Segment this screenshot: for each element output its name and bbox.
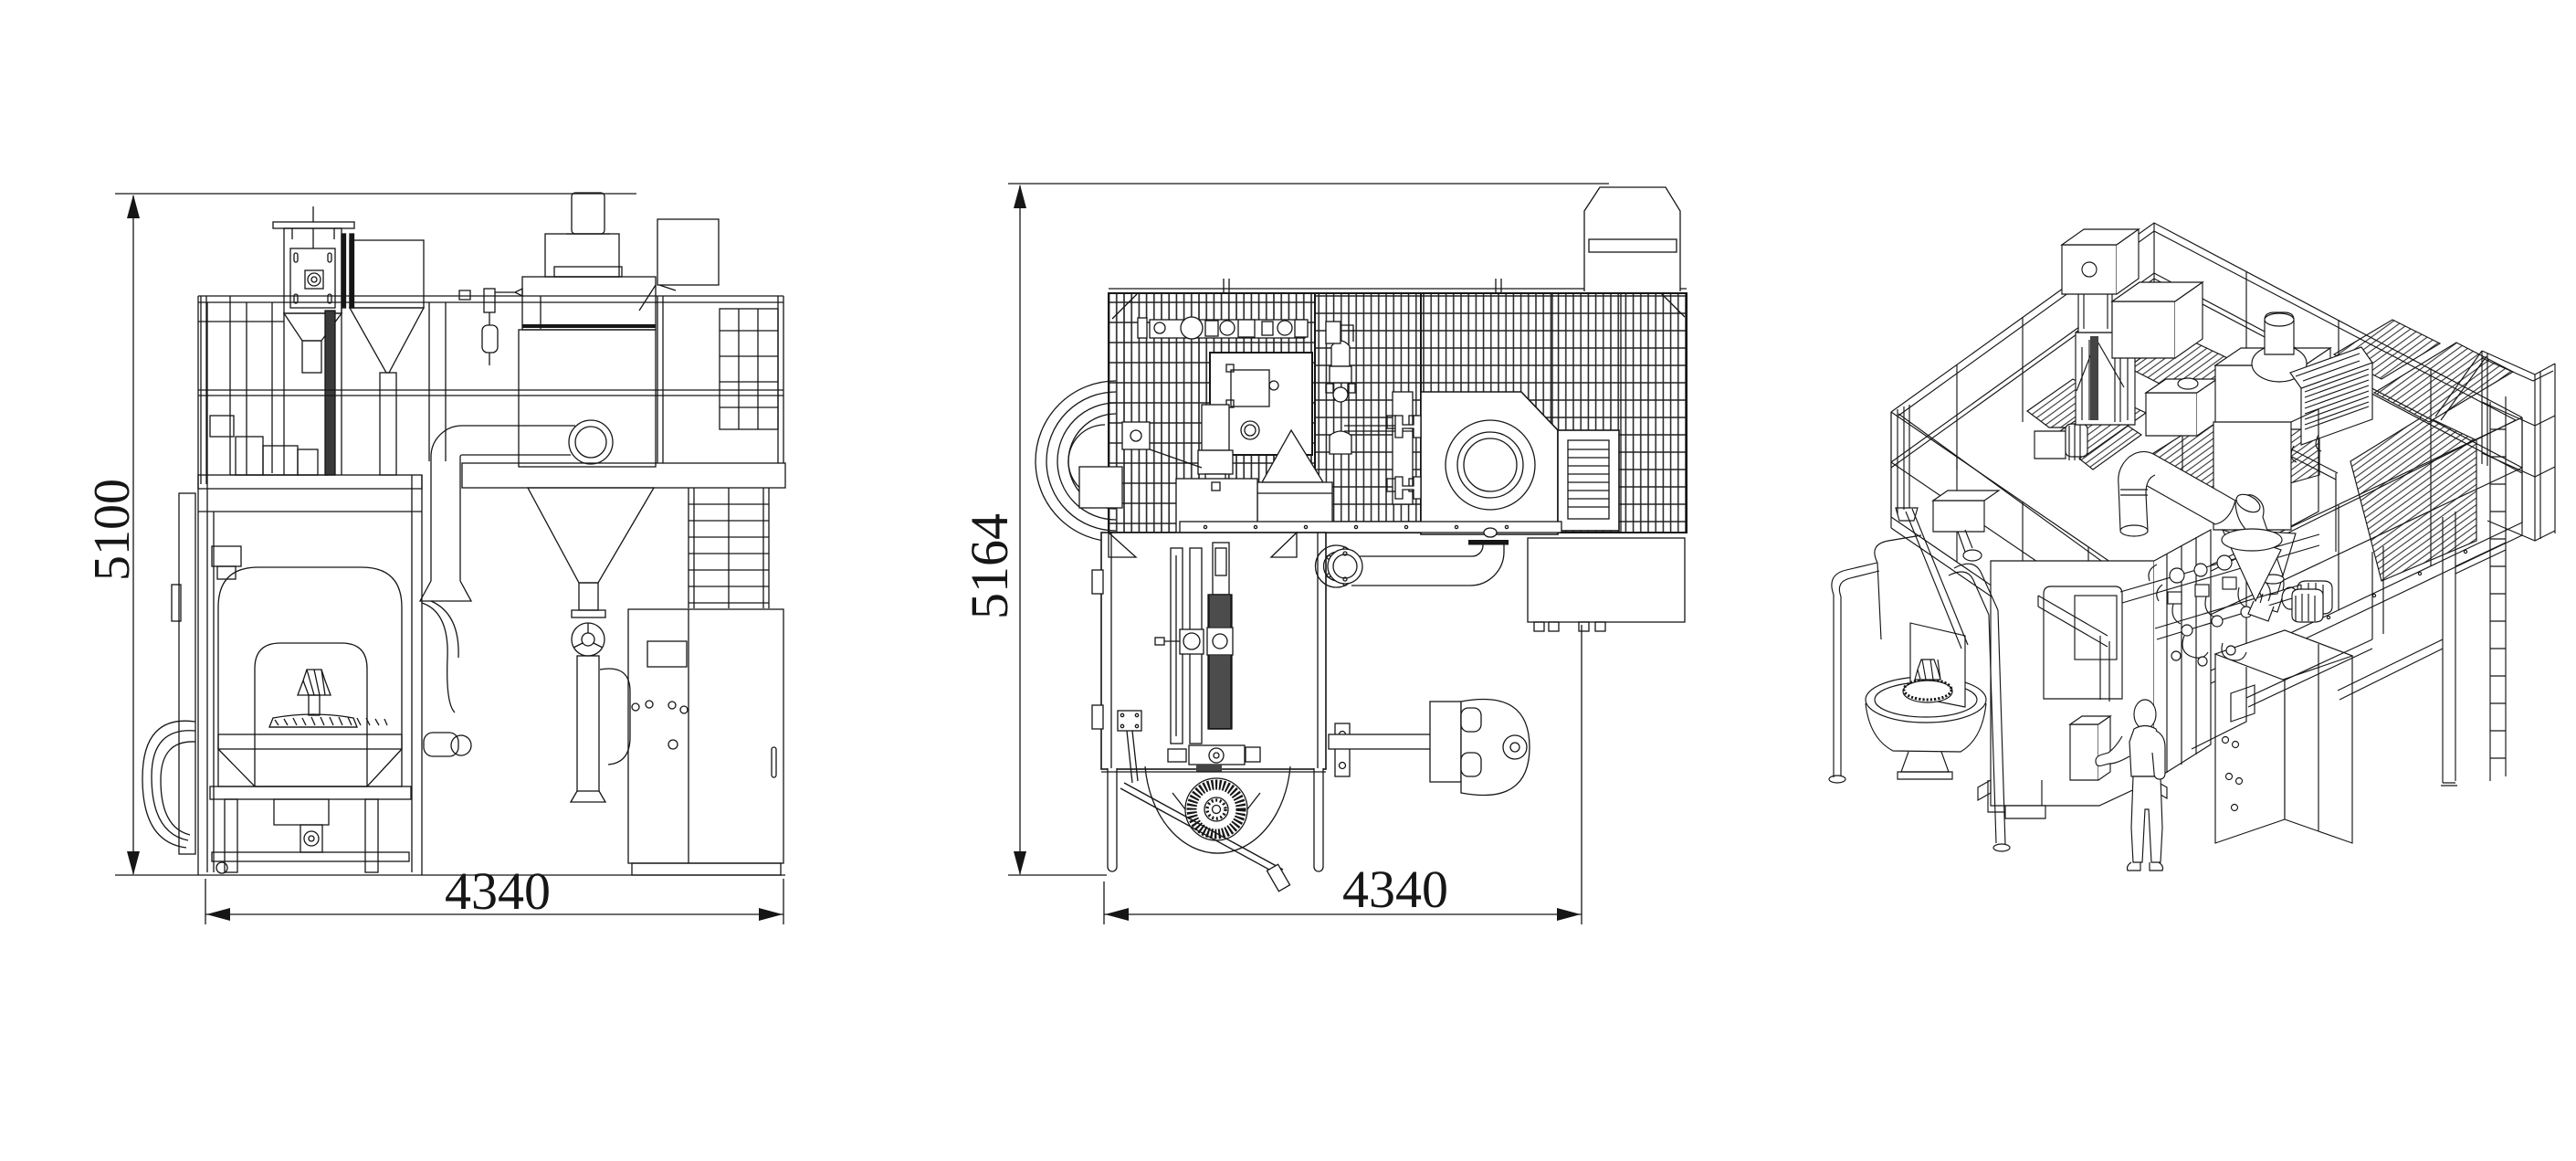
svg-text:5164: 5164 — [960, 513, 1019, 619]
svg-text:4340: 4340 — [445, 861, 551, 921]
svg-text:5100: 5100 — [84, 479, 141, 581]
svg-text:4340: 4340 — [1342, 860, 1448, 919]
